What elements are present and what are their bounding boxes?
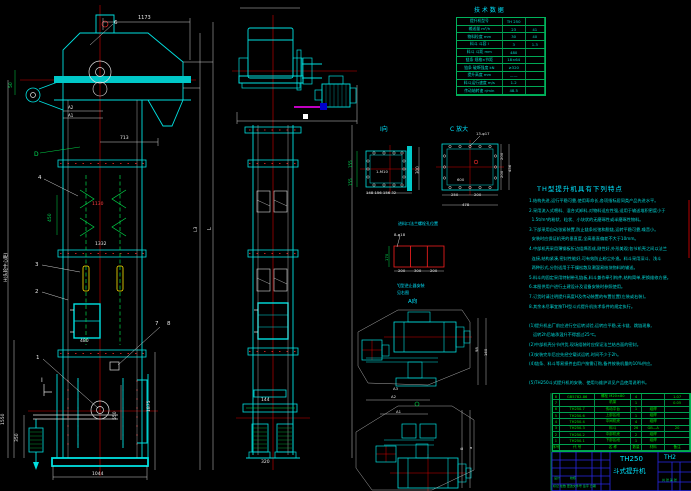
table-cell [526,57,545,64]
table-cell [665,432,690,437]
table-cell [560,400,596,405]
features-lines: 1.结构先进,运行平稳可靠,使用寿命长,各项指标居同类产品先进水平。2.采用流入… [529,196,691,388]
backstop-note-1: YJ型逆止器安装 [397,284,425,288]
dim-label-A2: A2 [68,106,73,110]
table-cell: 1 [631,438,642,443]
table-row: 提升机型号TH 250 [457,18,545,26]
hole-label-13: 13-φ17 [476,132,490,136]
table-cell: 组焊 [642,438,665,443]
platform-outline-upper [358,310,470,385]
note-line: 6.本图供用户进行土建设计及设备安装时参照使用。 [529,282,691,292]
table-row: 传动轴转速 r/min48.5 [457,87,545,95]
hole-label-8: 8-φ18 [394,233,405,237]
dim-300: 300 [416,166,420,174]
dim-550: 550 [114,411,119,420]
table-cell: 8 [553,394,560,399]
dim-144: 144 [261,399,270,404]
dim-grid-300: 300 [414,269,421,273]
head-platform-band [54,76,191,83]
section-label-D: D [34,152,39,158]
motor-fins [326,84,346,107]
gravity-arrow [33,462,39,470]
table-cell: 23 [503,26,526,33]
table-cell: 下部区段 [595,438,631,443]
note-line: (3)安装完毕后应先经空载试运转,时间不少于2h。 [529,350,691,360]
note-line: 安装时应保证机壳的垂直度,全高垂直偏差不大于10mm。 [529,234,691,244]
table-cell: 序号 [553,445,560,450]
dim-L: L [208,227,213,230]
dim-200-right-b: 200 [500,171,504,178]
table-cell: 20 [665,426,690,431]
note-line: 运转2h后轴承温升不得超过25℃。 [529,330,691,340]
table-row: 链条 破断强度 kN≥320 [457,64,545,72]
dim-label-A2-lower: A2 [391,395,396,399]
table-cell [665,419,690,424]
table-cell: TH250.7 [560,407,596,412]
dim-a: a [469,447,473,449]
dim-98: 98 [475,347,479,352]
note-line [529,369,691,379]
table-cell [526,49,545,56]
table-cell: 链条 破断强度 kN [457,64,503,71]
table-cell: 1 [631,400,642,405]
table-cell [642,400,665,405]
table-row: 料斗 斗容 l31.3 [457,41,545,49]
table-cell: 料斗 斗容 l [457,41,503,48]
note-line: 3.下部采用自动张紧装置,防止链条松弛和脱链,运转平稳可靠,噪音小。 [529,225,691,235]
dim-170: 170 [385,254,389,261]
cad-drawing-canvas: 1173650A2A1713D44501130133232784801I5501… [0,0,691,491]
table-cell: 4 [631,394,642,399]
dim-grid-200b: 200 [430,269,437,273]
table-cell: 机架 [595,400,631,405]
dim-320: 320 [261,461,270,466]
table-cell: TH250.3 [560,426,596,431]
table-cell: 18×64 [503,57,526,64]
table-cell: 组焊 [642,407,665,412]
dim-1130: 1130 [92,203,103,208]
inlet-flange-grid [394,246,444,267]
dim-label-A3: A3 [393,387,398,391]
table-cell: 1 [631,407,642,412]
table-cell: 传动轴转速 r/min [457,87,503,94]
note-line: 4.中部机壳采用薄钢板折边组焊而成,刚性好,外形美观;各节机壳之间以法兰 [529,244,691,254]
table-cell [665,407,690,412]
accent-marks [294,103,327,110]
table-cell: 链条 规格×节距 [457,57,503,64]
dim-1044: 1044 [92,473,103,478]
table-cell: 1 [631,413,642,418]
titleblock-check: 校核 [570,477,576,480]
table-cell: 中部机壳 [595,432,631,437]
table-row: 链条 规格×节距18×64 [457,57,545,65]
dim-label-A1: A1 [68,114,73,118]
table-cell: 48.5 [503,87,526,94]
tech-table-title: 技 术 数 据 [474,8,504,14]
part-label-1: 1 [36,356,40,362]
hole-label-1-M10: 1-M10 [376,170,388,174]
note-line: 两种形式,分别适用于干燥松散及潮湿易结块物料的输送。 [529,263,691,273]
table-cell: 4 [553,419,560,424]
note-line: 5.料斗的固定采用特制带孔链板,料斗兼作牵引构件,结构简单,更换维修方便。 [529,273,691,283]
part-label-8: 8 [167,322,171,328]
table-cell: 中间机壳 [595,419,631,424]
table-cell: TH250.4 [560,419,596,424]
table-cell: 螺栓 M20×80 [595,394,631,399]
table-cell [642,394,665,399]
titleblock-sign-row: 标记 处数 更改文件号 签字 日期 [553,485,596,488]
table-cell: 材料 [642,445,665,450]
table-cell: 物料粒度 mm [457,33,503,40]
dim-200-bottom: 200 [474,193,481,197]
part-label-6: 6 [114,21,118,27]
table-cell: 输送量 m³/h [457,26,503,33]
part-label-2: 2 [35,290,39,296]
side-view-elevator [239,28,356,458]
table-cell: GB—A [642,426,665,431]
table-cell: 组焊 [642,432,665,437]
bom-table: 8GB5782-86螺栓 M20×8041.077机架10.056TH250.7… [552,393,691,452]
titleblock-right-partial: TH2 [664,455,676,461]
note-line: (4)链条、料斗等易损件由用户按需订购,备件按装机量的10%供应。 [529,359,691,369]
titleblock-model: TH250 [620,456,643,463]
dim-450: 450 [49,213,54,222]
table-row: 料斗 斗距 mm480 [457,49,545,57]
table-cell: 代 号 [560,445,596,450]
dim-1875: 1875 [148,401,153,412]
view-label-A: A向 [408,300,417,306]
dim-1173: 1173 [138,16,151,21]
part-label-3: 3 [35,263,39,269]
dim-456: 456 [508,165,512,172]
table-cell: ≥320 [503,64,526,71]
dim-350: 350 [16,433,21,442]
table-cell: 传动平台 [595,407,631,412]
dim-480: 480 [80,340,89,345]
table-cell: 41 [526,26,545,33]
table-cell: 6 [553,407,560,412]
table-cell: 1 [553,438,560,443]
table-cell: 5 [553,413,560,418]
blue-square [320,103,327,110]
dim-160: 160 [484,349,488,356]
table-cell: 30 [503,33,526,40]
table-cell: 提升高度 mm [457,72,503,79]
dim-1332: 1332 [95,243,106,248]
table-cell: 备注 [665,445,690,450]
table-cell: 料斗运行速度 m/s [457,80,503,87]
inlet-flange-title: 进料口法兰螺栓孔位置 [398,222,438,226]
table-row: 提升高度 mm—— [457,72,545,80]
table-cell: TH250.2 [560,432,596,437]
table-cell: 2 [553,432,560,437]
table-cell: 3 [503,41,526,48]
tech-data-table: 提升机型号TH 250输送量 m³/h2341物料粒度 mm3040料斗 斗容 … [456,17,546,96]
table-cell: —— [503,72,526,79]
dim-I-bottom-row: 148 156 156 32 [366,191,396,195]
table-cell [665,438,690,443]
dim-50: 50 [10,82,15,88]
table-cell [526,18,545,25]
table-cell: TH 250 [503,18,526,25]
table-cell: 480 [503,49,526,56]
section-label-I: I [41,378,43,384]
platform-outline-lower [356,406,474,490]
flange-bar [407,146,412,191]
features-title: TH型提升机具有下列特点 [537,183,623,193]
note-line: 1.5t/m³的粉状、粒状、小块状的无磨琢性或半磨琢性物料。 [529,215,691,225]
dim-H-height: H(头轮中心距) [5,253,10,282]
dim-label-A1-lower: A1 [396,410,401,414]
dim-250: 250 [451,193,458,197]
table-cell: 7 [553,400,560,405]
table-cell: 名 称 [595,445,631,450]
backstop-note-2: 见右图 [397,291,409,295]
note-line: 连接,结构紧凑,密封性能好,可有效防止粉尘外逸。料斗采用深斗、浅斗 [529,254,691,264]
table-cell: 0.05 [665,400,690,405]
table-cell: 上部区段 [595,413,631,418]
part-label-7: 7 [155,322,159,328]
dim-1550: 1550 [2,414,7,425]
table-cell: 组焊 [642,413,665,418]
table-cell: 3 [553,426,560,431]
table-cell: 1.07 [665,394,690,399]
note-line: 1.结构先进,运行平稳可靠,使用寿命长,各项指标居同类产品先进水平。 [529,196,691,206]
titleblock-name: 斗式提升机 [613,468,646,475]
table-cell [665,413,690,418]
note-line: (1)提升机出厂前应进行空运转试验,运转应平稳,无卡链、跳链现象, [529,321,691,331]
table-cell: 1.2 [503,80,526,87]
table-cell: 料斗 斗距 mm [457,49,503,56]
table-cell: 提升机型号 [457,18,503,25]
dim-478: 478 [462,203,469,207]
table-cell: TH250.6 [560,413,596,418]
table-cell: TH250.1 [560,438,596,443]
table-cell: 料斗 [595,426,631,431]
note-line: 2.采用流入式喂料、混合式卸料,对物料适应性强,适用于输送堆积密度小于 [529,206,691,216]
part-label-4: 4 [38,176,42,182]
view-label-C: C 放大 [450,127,468,133]
note-line: (2)中部机壳分节供货,现场组装时应保证法兰结合面的密封。 [529,340,691,350]
dim-600: 600 [457,178,464,182]
table-row: 输送量 m³/h2341 [457,26,545,34]
titleblock-design: 设计 [554,477,560,480]
table-cell [526,80,545,87]
left-view-elevator [26,15,191,470]
bucket-outlines-green [80,190,126,236]
table-cell [526,72,545,79]
head-hood [248,28,293,78]
view-label-I: I向 [380,127,388,133]
table-row: 序号代 号名 称数量材料备注 [553,445,690,451]
table-cell: 40 [526,33,545,40]
dim-B: B [460,447,464,450]
dim-grid-200a: 200 [398,269,405,273]
table-row: 物料粒度 mm3040 [457,33,545,41]
table-cell: 数量 [631,445,642,450]
dim-155-upper: 155 [349,160,353,168]
table-cell: GB5782-86 [560,394,596,399]
table-cell: 4 [631,419,642,424]
note-line [529,311,691,321]
break-symbol [303,114,308,119]
features-notes: TH型提升机具有下列特点 1.结构先进,运行平稳可靠,使用寿命长,各项指标居同类… [529,196,691,388]
table-cell [526,64,545,71]
dim-200-right-a: 200 [500,153,504,160]
dim-713: 713 [120,137,129,142]
note-line: 8.其余未尽事宜按TH型斗式提升机技术条件的规定执行。 [529,302,691,312]
table-row: 料斗运行速度 m/s1.2 [457,80,545,88]
note-line: 7.订货时请注明提升高度H及传动装置的布置位置(左装或右装)。 [529,292,691,302]
note-line: (5)TH250斗式提升机的安装、使用与维护详见产品使用说明书。 [529,378,691,388]
dim-155-lower: 155 [349,178,353,186]
table-cell: 1.3 [526,41,545,48]
titleblock-sheet: 共 张 第 张 [662,479,677,482]
table-cell: 2 [631,432,642,437]
table-cell: 26 [631,426,642,431]
yellow-buckets [83,266,123,291]
table-cell: 组焊 [642,419,665,424]
dim-L3: L3 [195,227,200,232]
table-cell [526,87,545,94]
